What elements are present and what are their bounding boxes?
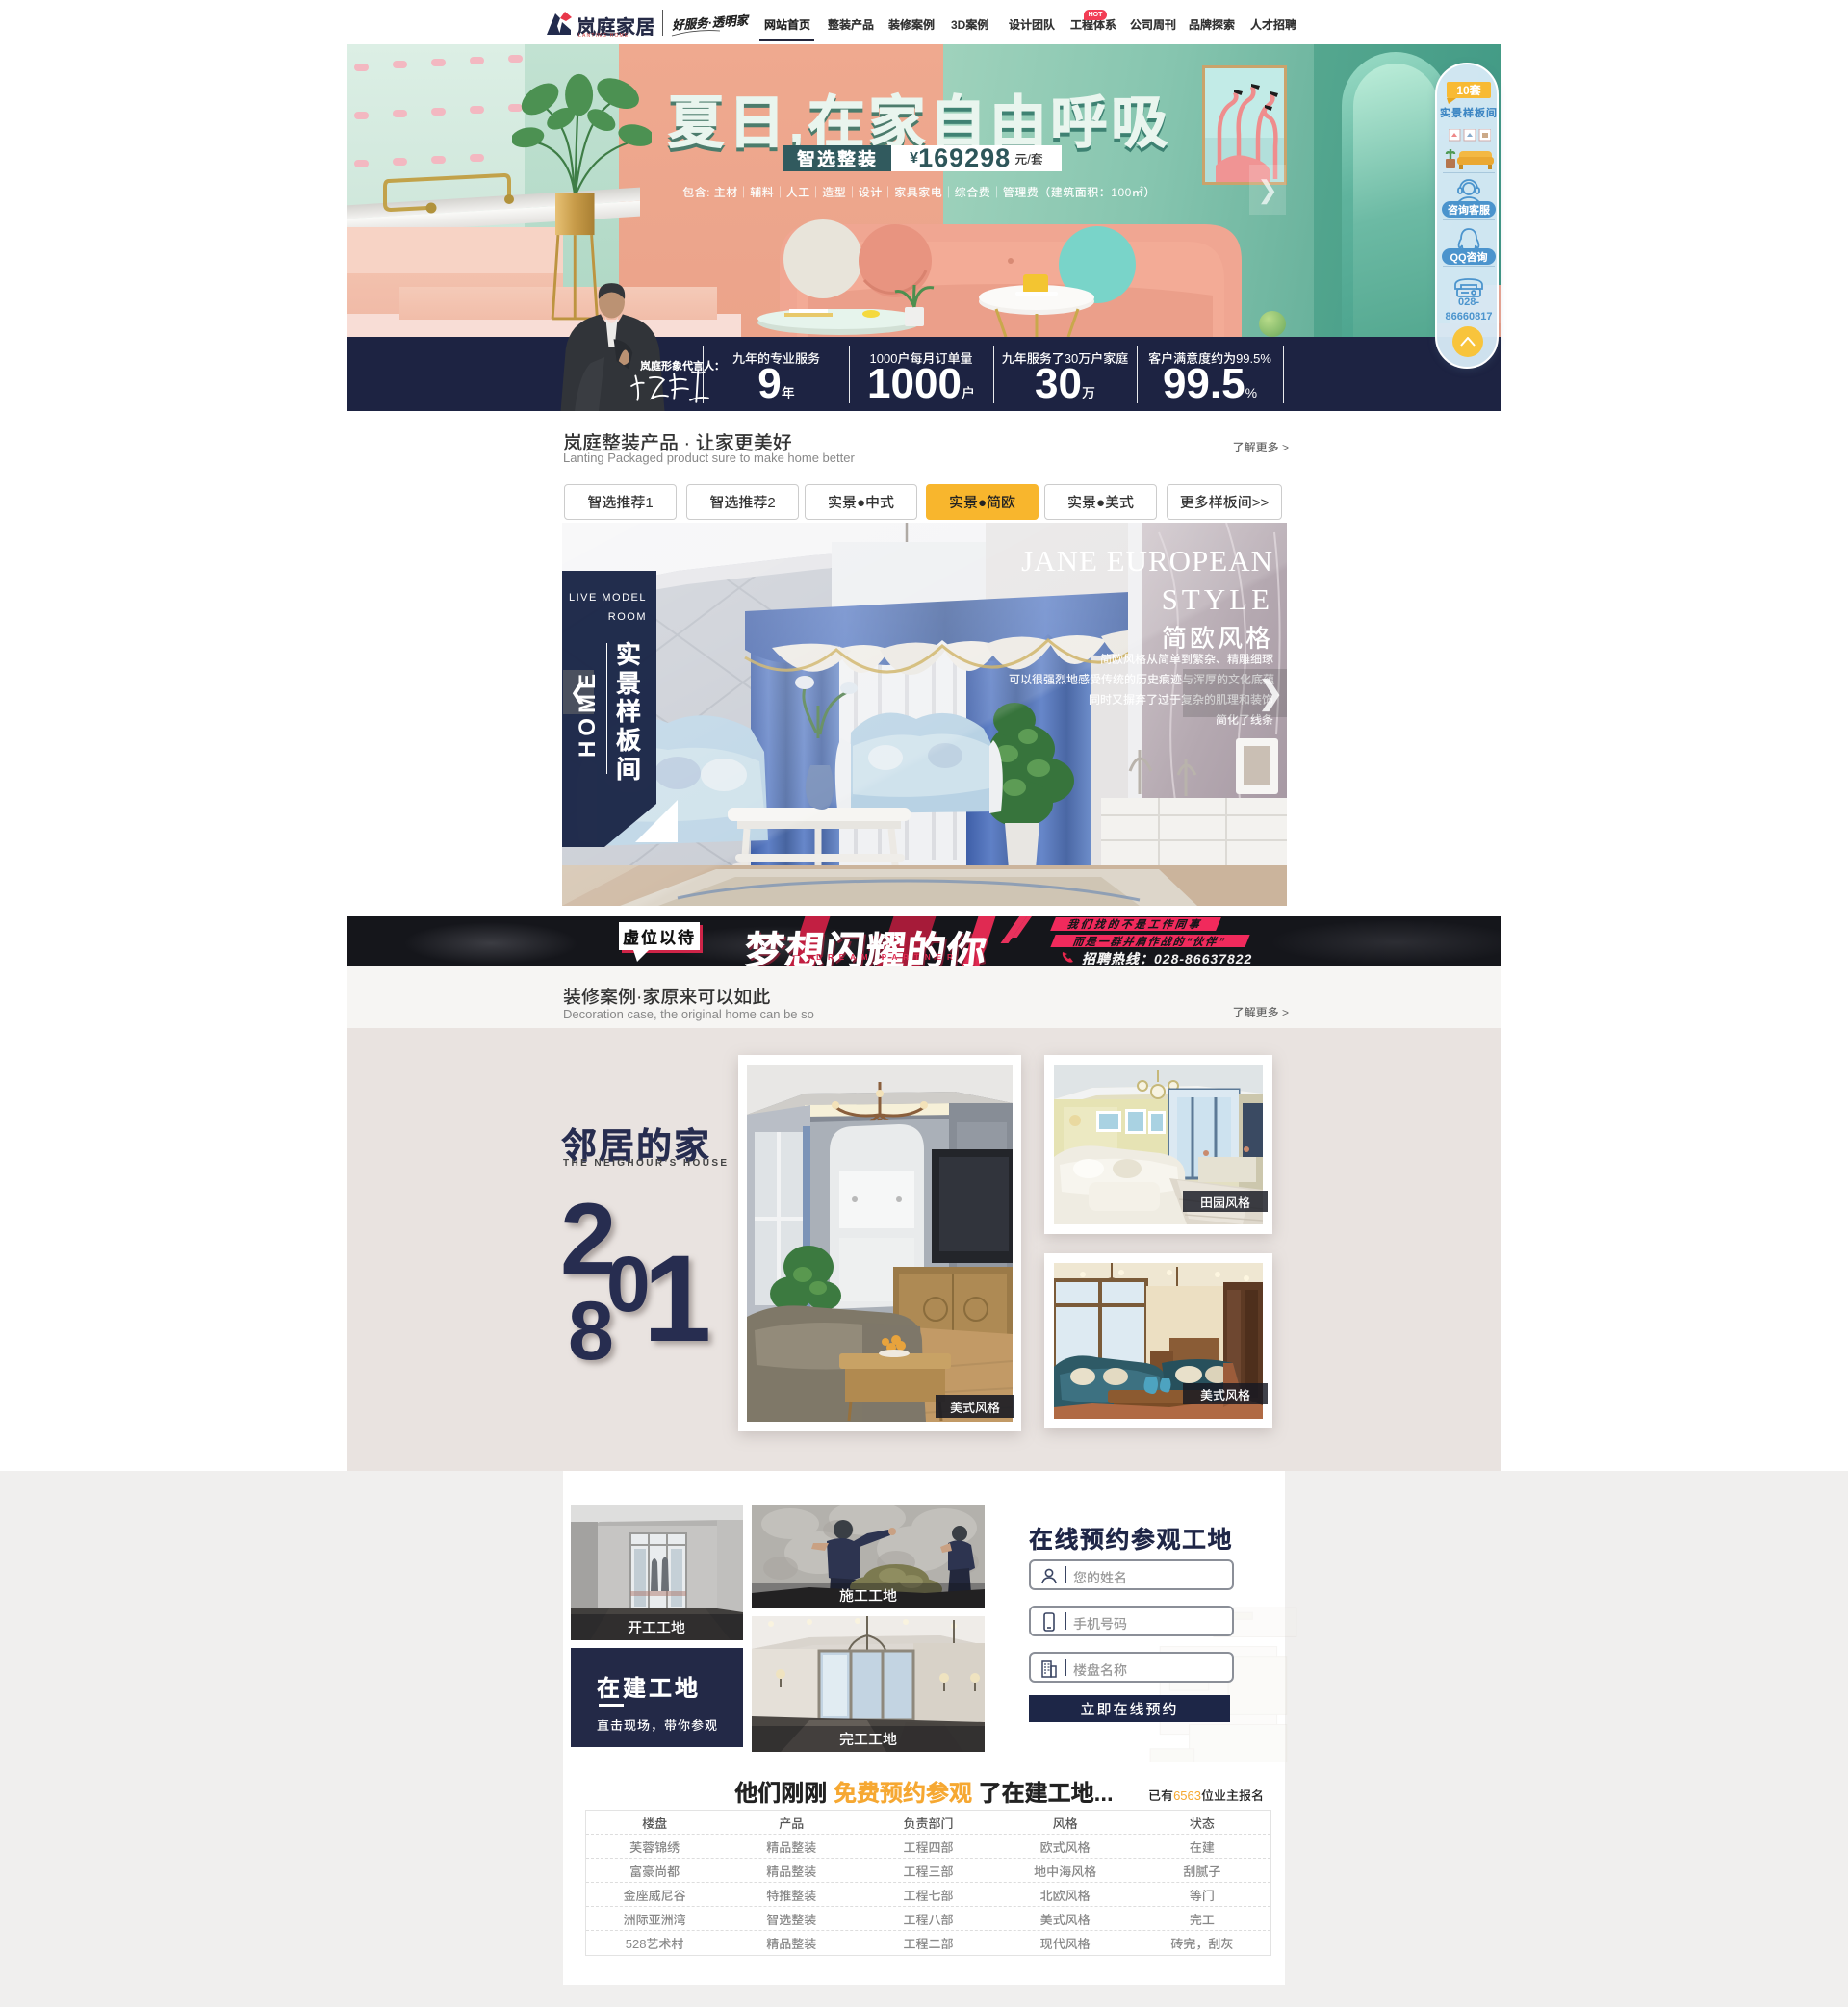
svg-text:开工工地: 开工工地: [628, 1620, 685, 1636]
svg-text:施工工地: 施工工地: [839, 1588, 897, 1605]
svg-text:完工工地: 完工工地: [839, 1732, 897, 1748]
